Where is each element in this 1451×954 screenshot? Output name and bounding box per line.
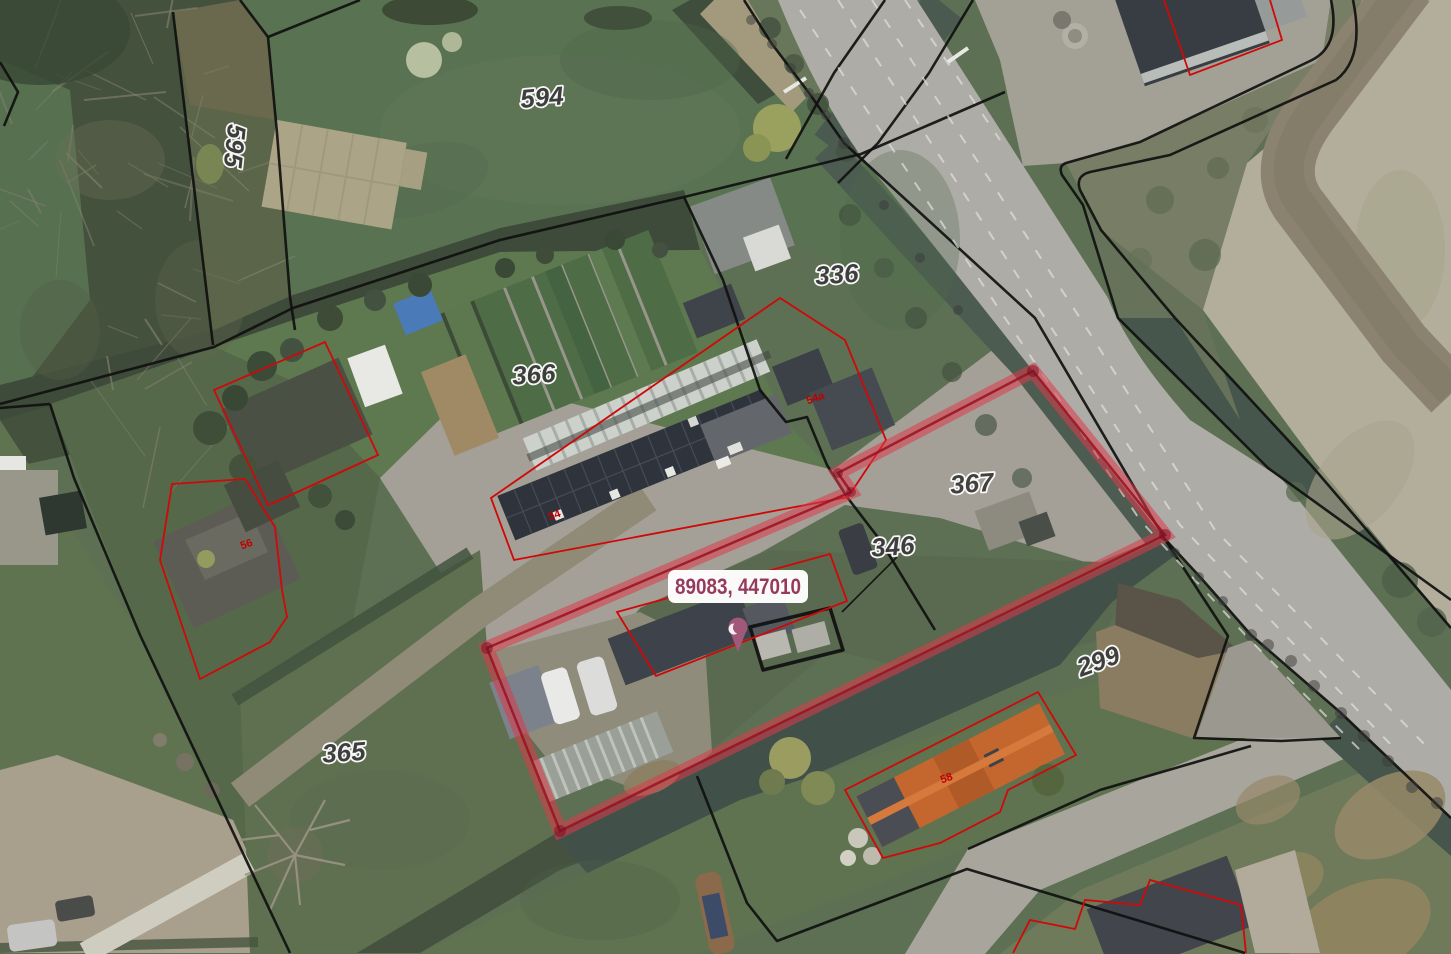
- svg-text:594: 594: [519, 80, 565, 114]
- svg-text:367: 367: [949, 467, 996, 500]
- svg-text:336: 336: [814, 258, 860, 291]
- svg-text:346: 346: [870, 530, 916, 563]
- svg-text:89083, 447010: 89083, 447010: [675, 574, 801, 599]
- svg-text:365: 365: [321, 736, 367, 769]
- svg-text:366: 366: [511, 358, 557, 391]
- svg-text:595: 595: [218, 123, 252, 170]
